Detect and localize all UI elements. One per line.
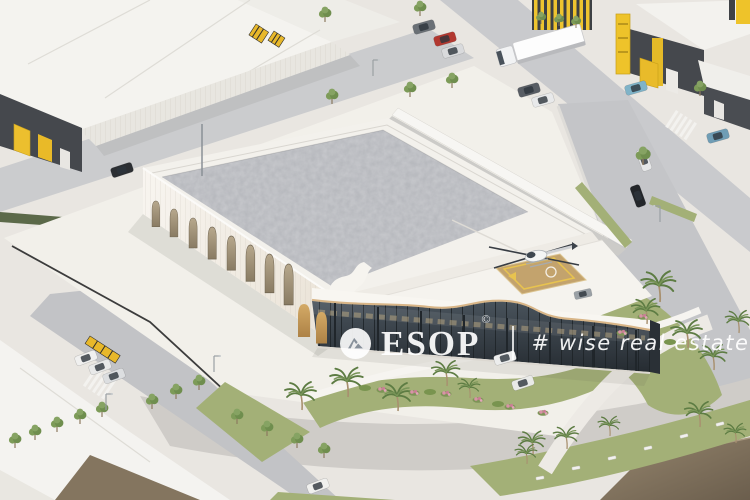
render-scene [0, 0, 750, 500]
corner-yellow-unit [736, 0, 750, 24]
architectural-render: ESOP© # wise real estate advice [0, 0, 750, 500]
